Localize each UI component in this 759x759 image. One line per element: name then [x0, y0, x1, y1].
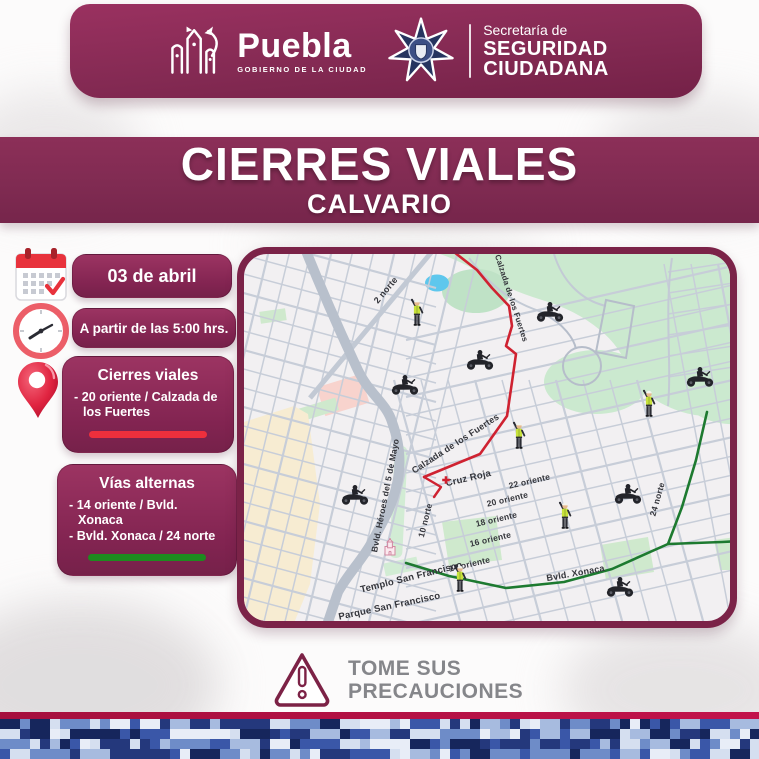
- puebla-skyline-icon: [163, 22, 229, 80]
- alternates-title: Vías alternas: [69, 475, 225, 493]
- divider: [469, 24, 471, 78]
- header-banner: Puebla GOBIERNO DE LA CIUDAD Secretaría …: [70, 4, 702, 98]
- location-pin-icon: [16, 360, 60, 422]
- alternate-color-bar: [88, 554, 206, 561]
- warning-line1: TOME SUS: [348, 657, 523, 680]
- ssc-line2: SEGURIDAD: [483, 40, 609, 60]
- alternates-box: Vías alternas - 14 oriente / Bvld. Xonac…: [57, 464, 237, 576]
- closures-title: Cierres viales: [74, 367, 222, 385]
- footer-camo-pattern: [0, 719, 759, 759]
- police-badge-icon: [385, 11, 457, 91]
- date-badge: 03 de abril: [72, 254, 232, 298]
- footer-accent-line: [0, 712, 759, 719]
- ssc-line1: Secretaría de: [483, 23, 609, 37]
- time-badge: A partir de las 5:00 hrs.: [72, 308, 236, 348]
- ssc-logo: Secretaría de SEGURIDAD CIUDADANA: [385, 11, 609, 91]
- closure-color-bar: [89, 431, 207, 438]
- alternates-item: - Bvld. Xonaca / 24 norte: [69, 529, 225, 544]
- police-officer-icon: [513, 422, 525, 449]
- svg-text:24 norte: 24 norte: [648, 481, 667, 517]
- svg-text:22 oriente: 22 oriente: [508, 471, 551, 490]
- calendar-icon: [14, 248, 68, 304]
- ssc-line3: CIUDADANA: [483, 60, 609, 80]
- map: 2 norteCalzada de los FuertesCalzada de …: [237, 247, 737, 628]
- alternates-item: - 14 oriente / Bvld. Xonaca: [69, 498, 225, 529]
- warning-triangle-icon: [270, 650, 334, 710]
- page-subtitle: CALVARIO: [307, 189, 452, 220]
- puebla-logo: Puebla GOBIERNO DE LA CIUDAD: [163, 22, 367, 80]
- warning-line2: PRECAUCIONES: [348, 680, 523, 703]
- motorcycle-icon: [615, 484, 641, 504]
- page-title: CIERRES VIALES: [181, 141, 578, 187]
- warning-block: TOME SUS PRECAUCIONES: [270, 650, 523, 710]
- svg-text:Cruz Roja: Cruz Roja: [445, 468, 493, 489]
- map-canvas: 2 norteCalzada de los FuertesCalzada de …: [244, 254, 730, 621]
- title-band: CIERRES VIALES CALVARIO: [0, 137, 759, 223]
- puebla-subtitle: GOBIERNO DE LA CIUDAD: [237, 66, 367, 74]
- puebla-wordmark: Puebla: [237, 29, 367, 63]
- closures-item: - 20 oriente / Calzada de los Fuertes: [74, 390, 222, 421]
- closures-box: Cierres viales - 20 oriente / Calzada de…: [62, 356, 234, 453]
- poster: Puebla GOBIERNO DE LA CIUDAD Secretaría …: [0, 0, 759, 759]
- clock-icon: [12, 302, 70, 360]
